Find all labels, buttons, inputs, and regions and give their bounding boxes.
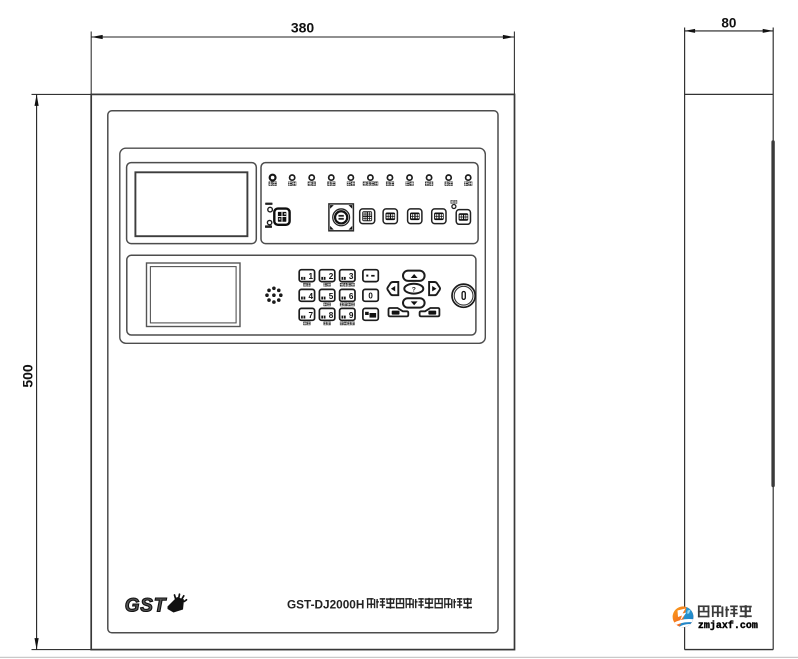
svg-text:2: 2	[329, 272, 334, 281]
svg-text:0: 0	[368, 292, 373, 301]
svg-text:1: 1	[309, 272, 314, 281]
svg-text:500: 500	[20, 364, 36, 388]
svg-text:GST: GST	[125, 595, 167, 616]
svg-text:6: 6	[349, 292, 354, 301]
svg-text:8: 8	[329, 311, 334, 320]
svg-text:380: 380	[291, 19, 315, 35]
svg-text:zmjaxf.com: zmjaxf.com	[698, 620, 758, 632]
svg-text:GST-DJ2000H: GST-DJ2000H	[287, 597, 364, 611]
svg-text:3: 3	[349, 272, 354, 281]
svg-text:7: 7	[309, 311, 314, 320]
svg-text:?: ?	[412, 286, 416, 293]
svg-text:9: 9	[349, 311, 354, 320]
svg-text:4: 4	[309, 292, 314, 301]
svg-text:5: 5	[329, 292, 334, 301]
svg-text:80: 80	[721, 16, 736, 31]
